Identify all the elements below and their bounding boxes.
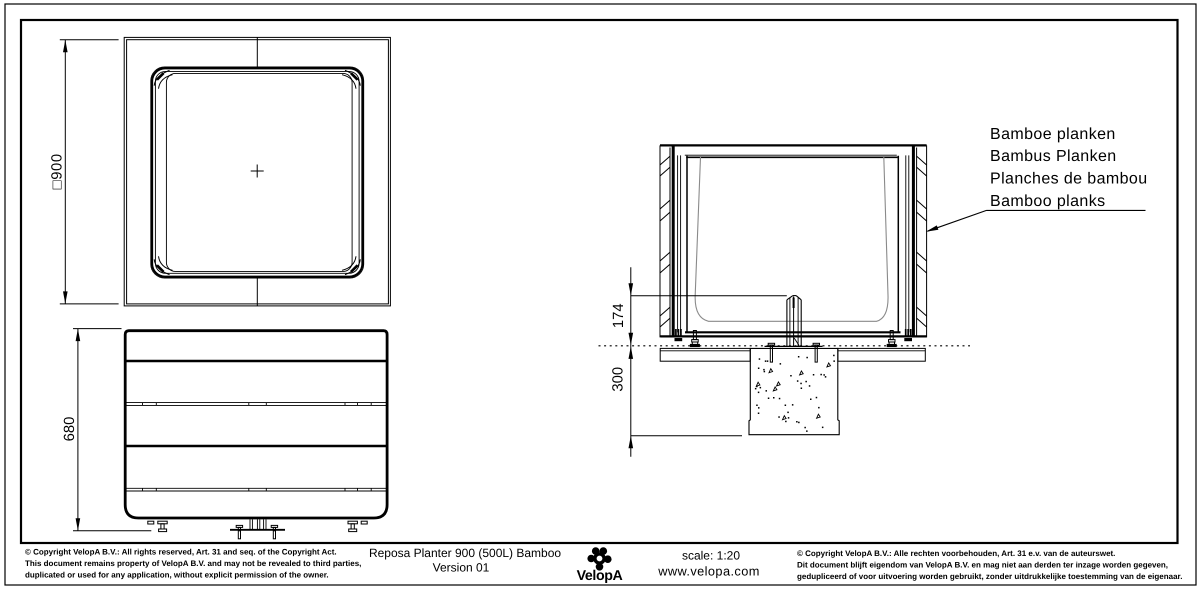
svg-text:Reposa Planter 900 (500L) Bamb: Reposa Planter 900 (500L) Bamboo [369,546,561,560]
svg-text:© Copyright VelopA B.V.: All r: © Copyright VelopA B.V.: All rights rese… [25,548,337,557]
svg-text:Bamboe planken: Bamboe planken [990,126,1116,143]
svg-text:300: 300 [611,367,627,392]
svg-text:© Copyright VelopA B.V.: Alle: © Copyright VelopA B.V.: Alle rechten vo… [797,549,1115,558]
svg-text:174: 174 [611,303,627,328]
svg-text:This document remains property: This document remains property of VelopA… [25,559,361,568]
svg-text:Bambus Planken: Bambus Planken [990,148,1117,165]
svg-text:Version 01: Version 01 [433,561,490,575]
svg-text:scale: 1:20: scale: 1:20 [682,549,740,563]
svg-text:www.velopa.com: www.velopa.com [657,564,760,579]
svg-text:VelopA: VelopA [577,568,623,584]
svg-text:Bamboo planks: Bamboo planks [990,193,1106,210]
svg-text:680: 680 [62,417,78,442]
svg-text:duplicated or used for any app: duplicated or used for any application, … [25,571,329,580]
svg-text:Planches de bambou: Planches de bambou [990,171,1148,188]
svg-text:gedupliceerd of voor uitvoerin: gedupliceerd of voor uitvoering worden g… [797,572,1182,581]
svg-text:□900: □900 [50,153,66,189]
svg-text:Dit document blijft eigendom v: Dit document blijft eigendom van VelopA … [797,561,1168,570]
